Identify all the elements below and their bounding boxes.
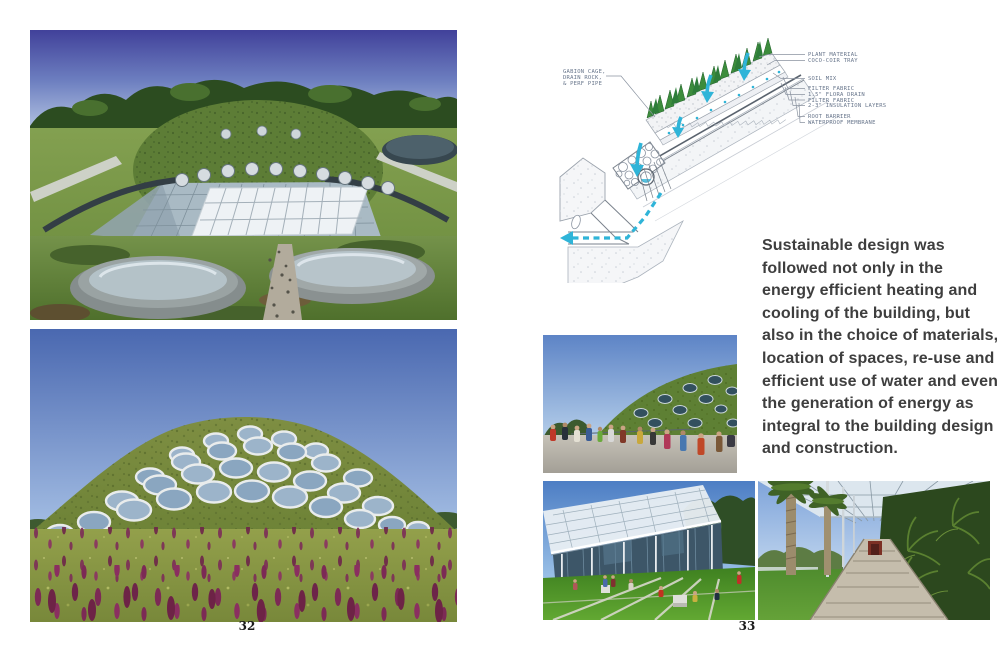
book-spread: GABION CAGE, DRAIN ROCK, & PERF PIPE PLA… [0,0,1000,652]
diagram-label: 2-3" INSULATION LAYERS [808,103,886,109]
diagram-label: WATERPROOF MEMBRANE [808,120,876,126]
photo-facade-lawn [543,481,755,620]
page-number-right: 33 [727,619,767,633]
photo-porthole-dome-meadow [30,329,457,622]
diagram-label: SOIL MIX [808,76,837,82]
body-text: Sustainable design was followed not only… [762,235,1000,461]
diagram-label-gabion: GABION CAGE, DRAIN ROCK, & PERF PIPE [563,69,606,87]
photo-living-roof-atrium [30,30,457,320]
diagram-label: COCO-COIR TRAY [808,58,858,64]
page-number-left: 32 [227,619,267,633]
photo-palm-walkway [758,481,990,620]
photo-visitors-dome [543,335,737,473]
